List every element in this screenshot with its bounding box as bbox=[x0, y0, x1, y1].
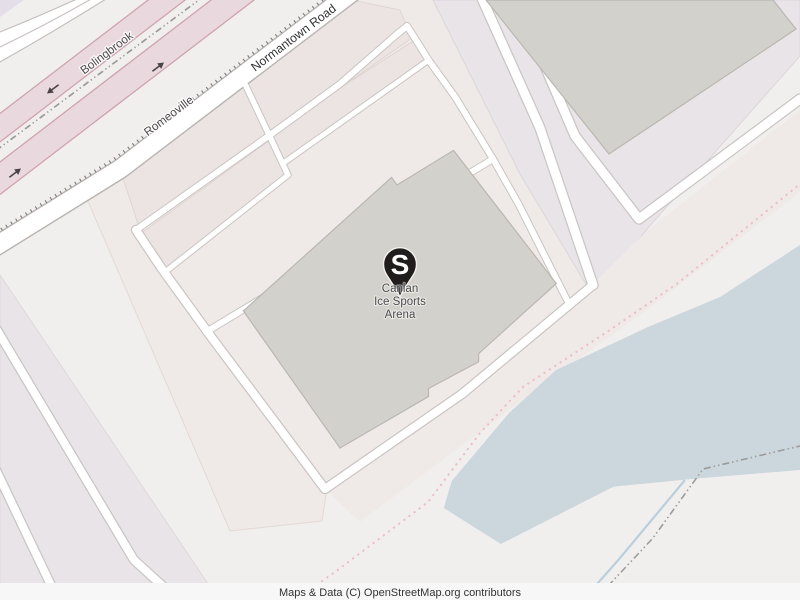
svg-text:Maps & Data (C) OpenStreetMap.: Maps & Data (C) OpenStreetMap.org contri… bbox=[279, 587, 522, 599]
svg-text:S: S bbox=[391, 249, 410, 280]
svg-text:Arena: Arena bbox=[385, 309, 416, 321]
svg-text:Ice Sports: Ice Sports bbox=[374, 296, 426, 308]
svg-text:Canlan: Canlan bbox=[382, 283, 418, 295]
